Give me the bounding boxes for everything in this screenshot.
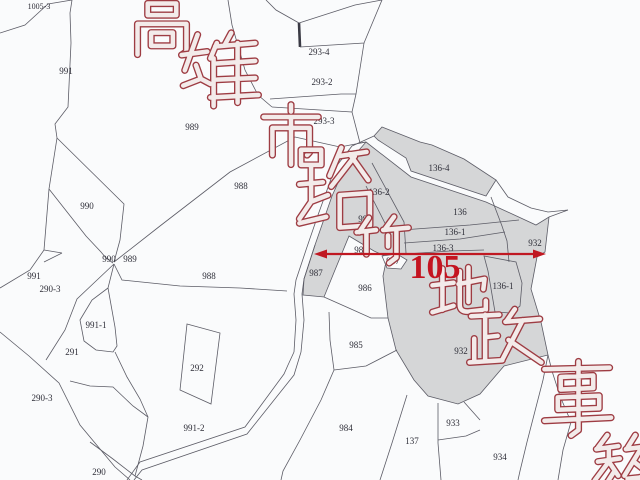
svg-text:136-1: 136-1: [493, 281, 514, 291]
svg-text:990: 990: [102, 254, 116, 264]
svg-text:985: 985: [349, 340, 363, 350]
svg-text:991-1: 991-1: [86, 320, 107, 330]
svg-text:988: 988: [234, 181, 248, 191]
svg-text:293-4: 293-4: [309, 47, 330, 57]
svg-text:105: 105: [410, 249, 461, 286]
svg-text:989: 989: [123, 254, 137, 264]
svg-text:293-2: 293-2: [312, 77, 333, 87]
svg-text:292: 292: [190, 363, 204, 373]
svg-text:137: 137: [405, 436, 419, 446]
svg-text:987: 987: [309, 268, 323, 278]
svg-text:136: 136: [453, 207, 467, 217]
svg-text:988: 988: [202, 271, 216, 281]
svg-text:290-3: 290-3: [40, 284, 61, 294]
svg-text:984: 984: [339, 423, 353, 433]
svg-text:990: 990: [80, 201, 94, 211]
svg-text:991: 991: [27, 271, 41, 281]
svg-text:991-2: 991-2: [184, 423, 205, 433]
svg-text:136-4: 136-4: [429, 163, 450, 173]
svg-text:291: 291: [65, 347, 79, 357]
svg-text:934: 934: [493, 452, 507, 462]
svg-text:290: 290: [92, 467, 106, 477]
svg-text:136-1: 136-1: [445, 227, 466, 237]
svg-text:991: 991: [59, 66, 73, 76]
svg-text:932: 932: [454, 346, 468, 356]
svg-text:986: 986: [358, 283, 372, 293]
svg-text:1005-3: 1005-3: [28, 2, 51, 11]
svg-text:932: 932: [528, 238, 542, 248]
svg-text:933: 933: [446, 418, 460, 428]
svg-text:290-3: 290-3: [32, 393, 53, 403]
svg-text:989: 989: [185, 122, 199, 132]
